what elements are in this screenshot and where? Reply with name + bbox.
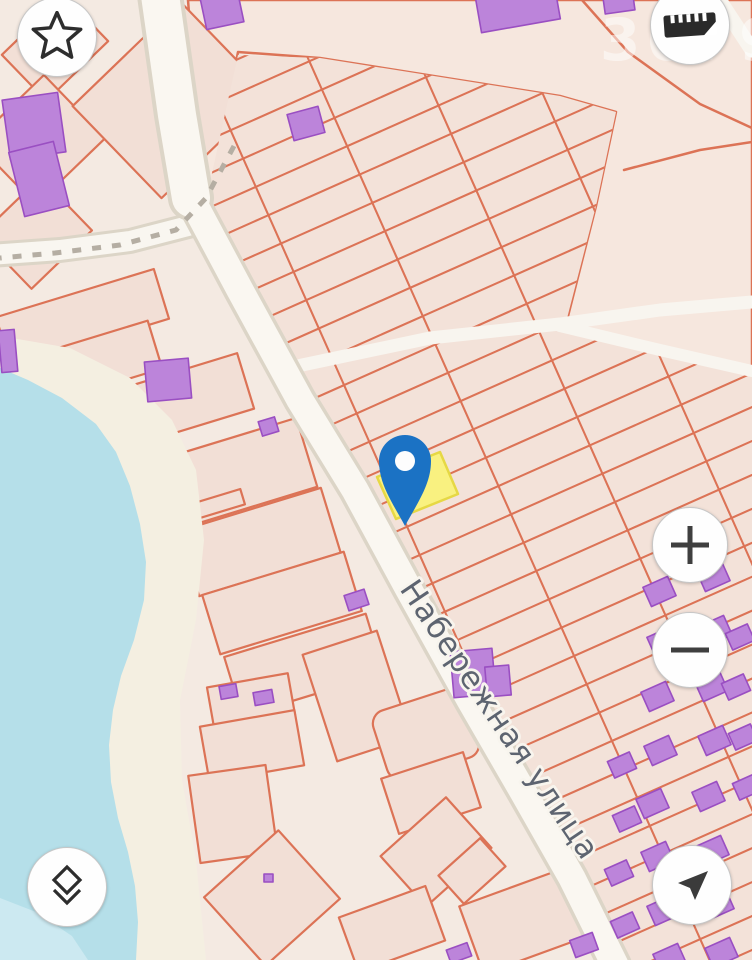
favorites-button[interactable] bbox=[17, 0, 97, 77]
ruler-icon bbox=[658, 5, 722, 45]
layers-icon bbox=[43, 863, 91, 911]
minus-icon bbox=[667, 627, 713, 673]
compass-button[interactable] bbox=[652, 845, 732, 925]
zoom-out-button[interactable] bbox=[652, 612, 728, 688]
navigation-arrow-icon bbox=[672, 865, 712, 905]
plus-icon bbox=[667, 522, 713, 568]
map-canvas[interactable]: Набережная улица3679 bbox=[0, 0, 752, 960]
map-app: Набережная улица3679 bbox=[0, 0, 752, 960]
zoom-in-button[interactable] bbox=[652, 507, 728, 583]
layers-button[interactable] bbox=[27, 847, 107, 927]
star-icon bbox=[31, 11, 83, 63]
